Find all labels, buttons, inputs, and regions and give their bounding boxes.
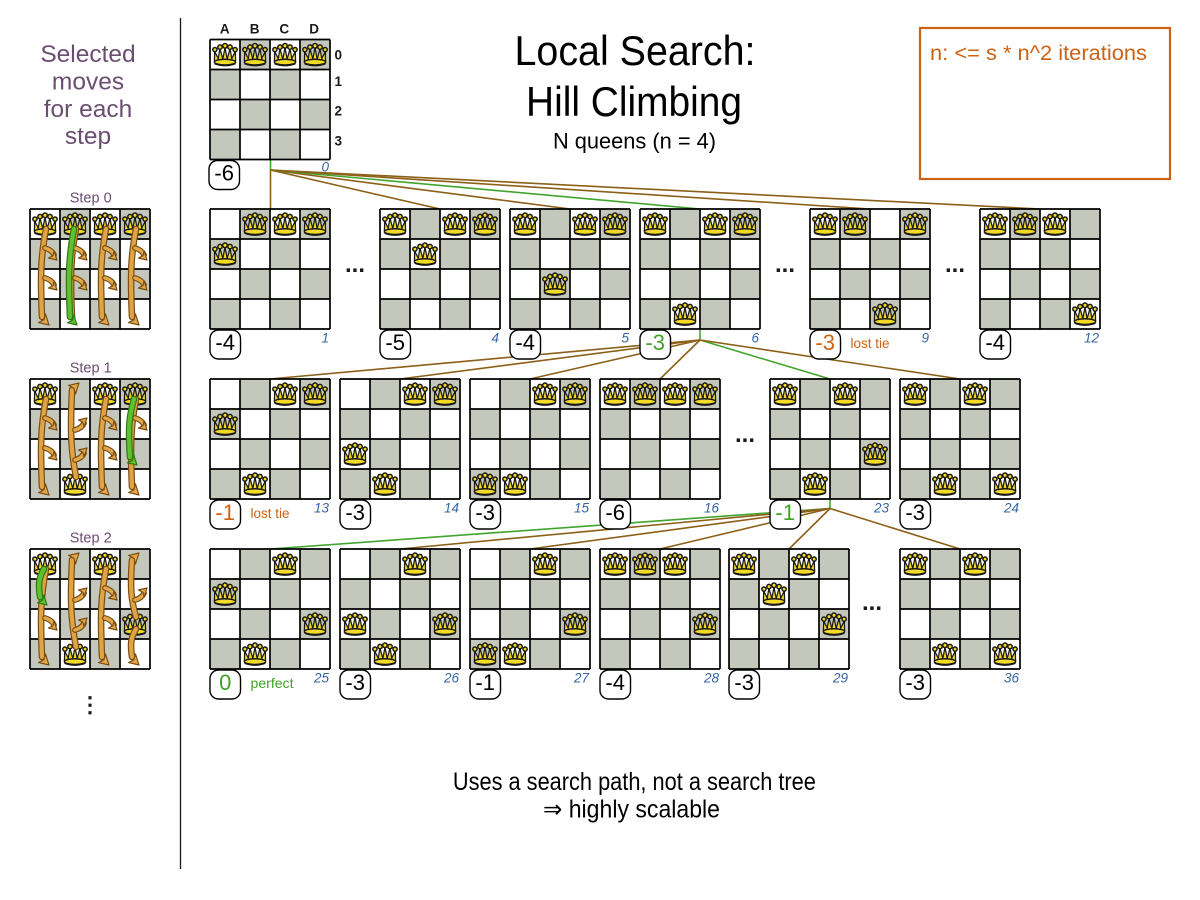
svg-text:lost tie: lost tie	[251, 505, 290, 521]
svg-text:-5: -5	[385, 330, 405, 355]
svg-text:0: 0	[321, 160, 329, 175]
svg-text:0: 0	[219, 670, 231, 695]
svg-text:-6: -6	[605, 500, 625, 525]
svg-text:-3: -3	[815, 330, 835, 355]
svg-text:-1: -1	[475, 670, 495, 695]
svg-text:-4: -4	[515, 330, 535, 355]
svg-text:perfect: perfect	[251, 675, 294, 691]
svg-text:28: 28	[703, 671, 720, 686]
svg-text:1: 1	[335, 74, 343, 89]
svg-text:-1: -1	[775, 500, 795, 525]
svg-text:0: 0	[335, 48, 343, 63]
svg-text:Uses a search path, not a sear: Uses a search path, not a search tree	[453, 768, 816, 796]
svg-text:-3: -3	[734, 670, 754, 695]
svg-text:Step 2: Step 2	[70, 531, 112, 547]
svg-text:-3: -3	[905, 500, 925, 525]
svg-text:...: ...	[862, 589, 882, 616]
svg-text:1: 1	[321, 331, 329, 346]
svg-text:-4: -4	[215, 330, 235, 355]
svg-text:-4: -4	[985, 330, 1005, 355]
svg-text:Local Search:: Local Search:	[515, 27, 756, 74]
svg-text:...: ...	[735, 421, 755, 448]
svg-text:N queens (n = 4): N queens (n = 4)	[553, 129, 716, 154]
svg-text:16: 16	[704, 501, 720, 516]
svg-text:-1: -1	[215, 500, 235, 525]
svg-text:4: 4	[491, 331, 499, 346]
svg-text:step: step	[65, 123, 111, 150]
svg-text:-4: -4	[605, 670, 625, 695]
svg-text:12: 12	[1084, 331, 1100, 346]
svg-text:-6: -6	[214, 161, 234, 186]
svg-text:-3: -3	[645, 330, 665, 355]
svg-text:Step 1: Step 1	[70, 361, 112, 377]
svg-text:C: C	[279, 22, 289, 37]
svg-text:23: 23	[873, 501, 890, 516]
svg-text:Selected: Selected	[40, 41, 135, 68]
svg-text:-3: -3	[475, 500, 495, 525]
svg-text:24: 24	[1003, 501, 1019, 516]
svg-text:5: 5	[621, 331, 629, 346]
svg-text:A: A	[220, 22, 230, 37]
svg-text:2: 2	[335, 104, 343, 119]
svg-text:14: 14	[444, 501, 459, 516]
svg-text:⋮: ⋮	[79, 692, 101, 717]
svg-text:D: D	[309, 22, 319, 37]
svg-text:-3: -3	[345, 670, 365, 695]
svg-text:26: 26	[443, 671, 460, 686]
svg-text:...: ...	[345, 251, 365, 278]
svg-text:13: 13	[314, 501, 330, 516]
svg-text:lost tie: lost tie	[851, 335, 890, 351]
svg-text:27: 27	[573, 671, 590, 686]
svg-text:⇒ highly scalable: ⇒ highly scalable	[543, 796, 720, 824]
svg-text:29: 29	[832, 671, 849, 686]
svg-text:B: B	[250, 22, 260, 37]
svg-text:...: ...	[945, 251, 965, 278]
svg-text:Hill Climbing: Hill Climbing	[526, 78, 742, 125]
svg-text:6: 6	[751, 331, 759, 346]
svg-text:for each: for each	[44, 96, 133, 123]
svg-text:25: 25	[313, 671, 330, 686]
svg-text:...: ...	[775, 251, 795, 278]
svg-text:15: 15	[574, 501, 590, 516]
svg-text:9: 9	[921, 331, 929, 346]
svg-text:Step 0: Step 0	[70, 191, 112, 207]
svg-text:n: <= s * n^2 iterations: n: <= s * n^2 iterations	[930, 42, 1147, 65]
svg-text:-3: -3	[345, 500, 365, 525]
svg-text:moves: moves	[52, 68, 124, 95]
svg-text:-3: -3	[905, 670, 925, 695]
svg-text:36: 36	[1004, 671, 1020, 686]
svg-text:3: 3	[335, 134, 343, 149]
